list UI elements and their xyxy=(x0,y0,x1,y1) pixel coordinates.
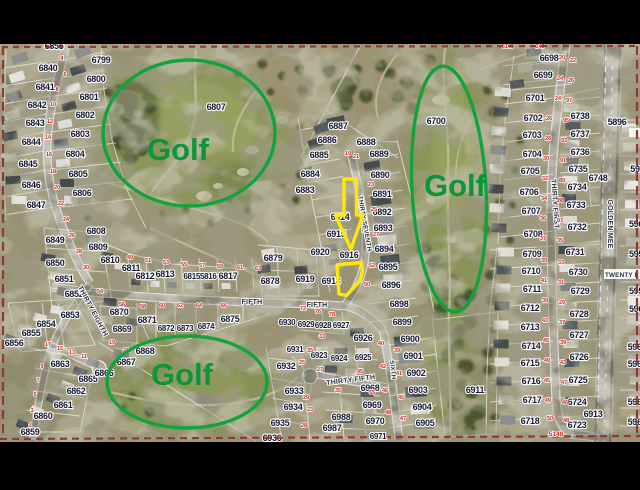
svg-text:21: 21 xyxy=(353,154,359,160)
svg-text:47: 47 xyxy=(400,416,406,422)
svg-text:FIFTH: FIFTH xyxy=(307,302,328,309)
svg-text:6807: 6807 xyxy=(207,102,226,112)
svg-text:Golf: Golf xyxy=(424,168,487,203)
svg-text:20: 20 xyxy=(559,55,565,61)
svg-text:6709: 6709 xyxy=(523,249,542,259)
svg-text:6916: 6916 xyxy=(340,250,359,260)
svg-text:6699: 6699 xyxy=(534,70,553,80)
svg-text:39: 39 xyxy=(542,298,548,304)
svg-text:6718: 6718 xyxy=(521,416,540,426)
svg-text:48: 48 xyxy=(385,410,391,416)
svg-text:45: 45 xyxy=(357,369,363,375)
svg-text:34: 34 xyxy=(541,196,548,202)
svg-text:47: 47 xyxy=(561,380,567,386)
svg-text:6856: 6856 xyxy=(5,338,24,348)
svg-text:9: 9 xyxy=(40,364,43,370)
svg-text:6735: 6735 xyxy=(569,164,588,174)
svg-text:6725: 6725 xyxy=(569,375,588,385)
svg-text:97: 97 xyxy=(566,98,572,104)
svg-text:30: 30 xyxy=(543,156,549,162)
svg-text:6841: 6841 xyxy=(36,82,55,92)
svg-text:66: 66 xyxy=(221,303,227,309)
svg-text:6727: 6727 xyxy=(570,330,589,340)
svg-text:35: 35 xyxy=(335,388,341,394)
svg-text:6701: 6701 xyxy=(526,93,545,103)
svg-text:27: 27 xyxy=(373,232,379,238)
svg-text:TWENTY E: TWENTY E xyxy=(605,272,639,279)
svg-text:6804: 6804 xyxy=(66,149,85,159)
svg-text:6863: 6863 xyxy=(51,359,70,369)
svg-text:6700: 6700 xyxy=(427,116,446,126)
svg-text:1: 1 xyxy=(28,423,31,429)
svg-text:6869: 6869 xyxy=(113,324,132,334)
svg-text:6988: 6988 xyxy=(332,412,351,422)
svg-text:6919: 6919 xyxy=(296,274,315,284)
svg-text:63: 63 xyxy=(255,266,261,272)
svg-text:76: 76 xyxy=(315,309,321,315)
svg-text:46: 46 xyxy=(382,388,388,394)
svg-text:14: 14 xyxy=(45,135,52,141)
svg-text:7: 7 xyxy=(36,378,39,384)
svg-text:6894: 6894 xyxy=(375,244,394,254)
svg-text:8: 8 xyxy=(55,87,58,93)
svg-text:55: 55 xyxy=(369,390,375,396)
svg-text:93: 93 xyxy=(561,138,567,144)
svg-text:6923: 6923 xyxy=(311,351,328,360)
svg-text:6840: 6840 xyxy=(39,63,58,73)
svg-text:596: 596 xyxy=(629,304,640,314)
svg-text:28: 28 xyxy=(301,423,307,429)
svg-text:GOLDEN MEE: GOLDEN MEE xyxy=(606,199,613,248)
svg-text:30: 30 xyxy=(83,265,89,271)
svg-text:6711: 6711 xyxy=(523,284,542,294)
svg-text:16: 16 xyxy=(46,152,52,158)
svg-text:6813: 6813 xyxy=(156,269,175,279)
svg-text:6889: 6889 xyxy=(370,149,389,159)
svg-text:6809: 6809 xyxy=(89,242,108,252)
svg-text:6712: 6712 xyxy=(521,303,540,313)
svg-text:49: 49 xyxy=(544,358,550,364)
svg-text:26: 26 xyxy=(546,116,552,122)
svg-text:5966: 5966 xyxy=(628,417,640,427)
svg-text:58: 58 xyxy=(140,304,146,310)
svg-text:6726: 6726 xyxy=(570,352,589,362)
svg-text:6896: 6896 xyxy=(382,280,401,290)
svg-text:6800: 6800 xyxy=(87,74,106,84)
svg-text:6879: 6879 xyxy=(264,253,283,263)
svg-text:6851: 6851 xyxy=(55,274,74,284)
svg-text:55: 55 xyxy=(181,262,187,268)
svg-text:6903: 6903 xyxy=(409,385,428,395)
svg-text:6849: 6849 xyxy=(46,235,65,245)
svg-text:15: 15 xyxy=(57,346,63,352)
svg-text:6702: 6702 xyxy=(524,113,543,123)
svg-text:26: 26 xyxy=(568,78,574,84)
svg-text:6713: 6713 xyxy=(521,322,540,332)
svg-text:6874: 6874 xyxy=(198,322,215,331)
svg-text:6971: 6971 xyxy=(370,432,387,441)
svg-text:39: 39 xyxy=(560,340,566,346)
svg-text:6925: 6925 xyxy=(355,353,372,362)
svg-text:20: 20 xyxy=(54,185,60,191)
svg-text:6698: 6698 xyxy=(540,53,559,63)
svg-text:6710: 6710 xyxy=(522,266,541,276)
svg-text:11: 11 xyxy=(81,354,87,360)
svg-text:6870: 6870 xyxy=(110,307,129,317)
svg-text:43: 43 xyxy=(560,360,566,366)
svg-text:6: 6 xyxy=(63,72,66,78)
svg-text:6900: 6900 xyxy=(401,334,420,344)
svg-text:6930: 6930 xyxy=(279,318,296,327)
svg-text:37: 37 xyxy=(540,236,546,242)
svg-text:45: 45 xyxy=(398,395,404,401)
svg-text:595: 595 xyxy=(629,286,640,296)
svg-text:41: 41 xyxy=(541,278,547,284)
svg-text:6868: 6868 xyxy=(136,346,155,356)
svg-text:91: 91 xyxy=(560,158,566,164)
svg-text:6845: 6845 xyxy=(19,159,38,169)
svg-text:23: 23 xyxy=(307,407,313,413)
svg-text:6891: 6891 xyxy=(373,189,392,199)
svg-text:6802: 6802 xyxy=(76,110,95,120)
svg-text:6810: 6810 xyxy=(101,255,120,265)
svg-text:54: 54 xyxy=(97,289,104,295)
svg-text:596: 596 xyxy=(629,219,640,229)
svg-text:39: 39 xyxy=(541,258,547,264)
svg-text:6738: 6738 xyxy=(571,111,590,121)
svg-text:28: 28 xyxy=(76,249,82,255)
svg-text:40: 40 xyxy=(378,341,384,347)
svg-text:6886: 6886 xyxy=(318,135,337,145)
svg-text:6737: 6737 xyxy=(571,129,590,139)
svg-text:52: 52 xyxy=(369,263,375,269)
svg-text:12: 12 xyxy=(47,119,53,125)
svg-text:36: 36 xyxy=(540,216,546,222)
svg-text:6733: 6733 xyxy=(567,200,586,210)
svg-text:29: 29 xyxy=(303,395,309,401)
svg-text:5148: 5148 xyxy=(549,431,564,438)
svg-text:59: 59 xyxy=(630,164,640,174)
svg-text:6843: 6843 xyxy=(26,118,45,128)
svg-text:6716: 6716 xyxy=(522,376,541,386)
svg-text:33: 33 xyxy=(319,334,325,340)
svg-text:6935: 6935 xyxy=(271,418,290,428)
svg-text:6970: 6970 xyxy=(366,416,385,426)
svg-text:89: 89 xyxy=(559,178,565,184)
svg-text:5896: 5896 xyxy=(608,117,627,127)
svg-text:FIFTH: FIFTH xyxy=(242,299,263,306)
svg-text:6885: 6885 xyxy=(310,150,329,160)
svg-text:6704: 6704 xyxy=(523,149,542,159)
svg-text:6707: 6707 xyxy=(522,206,541,216)
svg-text:88: 88 xyxy=(558,198,564,204)
svg-text:22: 22 xyxy=(570,58,576,64)
svg-text:39: 39 xyxy=(394,348,400,354)
svg-text:6888: 6888 xyxy=(357,137,376,147)
svg-text:10: 10 xyxy=(50,102,56,108)
svg-text:42: 42 xyxy=(380,364,386,370)
svg-text:6861: 6861 xyxy=(54,400,73,410)
svg-text:5: 5 xyxy=(33,392,36,398)
svg-text:6926: 6926 xyxy=(354,333,373,343)
svg-text:64: 64 xyxy=(196,303,203,309)
svg-text:60: 60 xyxy=(159,303,165,309)
svg-text:78: 78 xyxy=(329,312,335,318)
svg-text:6717: 6717 xyxy=(523,395,542,405)
svg-text:24: 24 xyxy=(63,217,70,223)
svg-text:6878: 6878 xyxy=(261,276,280,286)
svg-text:49: 49 xyxy=(545,398,551,404)
svg-text:6714: 6714 xyxy=(522,341,541,351)
svg-text:6911: 6911 xyxy=(466,385,485,395)
svg-text:6920: 6920 xyxy=(311,247,330,257)
svg-text:6846: 6846 xyxy=(22,180,41,190)
svg-text:32: 32 xyxy=(542,176,548,182)
svg-text:45: 45 xyxy=(544,378,550,384)
svg-text:45: 45 xyxy=(543,338,549,344)
svg-text:18: 18 xyxy=(50,169,56,175)
svg-text:22: 22 xyxy=(58,201,64,207)
svg-text:6724: 6724 xyxy=(568,397,587,407)
svg-text:49: 49 xyxy=(127,255,133,261)
svg-text:6715: 6715 xyxy=(521,358,540,368)
svg-text:6987: 6987 xyxy=(323,423,342,433)
svg-text:87: 87 xyxy=(557,218,563,224)
svg-text:37: 37 xyxy=(559,320,565,326)
svg-text:6890: 6890 xyxy=(371,170,390,180)
svg-text:6732: 6732 xyxy=(568,222,587,232)
svg-text:43: 43 xyxy=(542,318,548,324)
svg-text:595: 595 xyxy=(629,249,640,259)
svg-text:57: 57 xyxy=(199,263,205,269)
svg-text:6902: 6902 xyxy=(407,368,426,378)
svg-text:46: 46 xyxy=(562,400,568,406)
svg-text:6801: 6801 xyxy=(80,92,99,102)
svg-text:5965: 5965 xyxy=(628,397,640,407)
svg-text:51: 51 xyxy=(145,258,151,264)
svg-text:5962: 5962 xyxy=(628,342,640,352)
svg-text:6728: 6728 xyxy=(570,309,589,319)
svg-text:6931: 6931 xyxy=(287,345,304,354)
svg-text:24: 24 xyxy=(557,76,564,82)
svg-text:6899: 6899 xyxy=(393,317,412,327)
svg-text:50: 50 xyxy=(364,282,370,288)
svg-text:25: 25 xyxy=(371,207,377,213)
svg-text:53: 53 xyxy=(163,260,169,266)
svg-text:6929: 6929 xyxy=(298,320,315,329)
svg-text:6969: 6969 xyxy=(363,400,382,410)
svg-text:3: 3 xyxy=(30,408,33,414)
svg-text:25: 25 xyxy=(299,360,305,366)
svg-text:6842: 6842 xyxy=(28,100,47,110)
svg-text:72: 72 xyxy=(300,306,306,312)
svg-text:6934: 6934 xyxy=(284,402,303,412)
svg-text:Golf: Golf xyxy=(151,357,214,392)
svg-text:6703: 6703 xyxy=(523,130,542,140)
svg-text:31: 31 xyxy=(558,280,564,286)
svg-text:6862: 6862 xyxy=(67,386,86,396)
svg-text:6871: 6871 xyxy=(138,315,157,325)
svg-text:41: 41 xyxy=(396,371,402,377)
svg-text:6901: 6901 xyxy=(404,351,423,361)
svg-text:6799: 6799 xyxy=(92,55,111,65)
svg-text:6730: 6730 xyxy=(569,267,588,277)
svg-text:6734: 6734 xyxy=(568,182,587,192)
svg-text:6873: 6873 xyxy=(177,324,194,333)
svg-text:50: 50 xyxy=(547,416,553,422)
svg-text:19: 19 xyxy=(345,151,351,157)
svg-text:35: 35 xyxy=(557,238,563,244)
svg-text:6927: 6927 xyxy=(333,321,350,330)
svg-text:33: 33 xyxy=(558,260,564,266)
svg-text:6860: 6860 xyxy=(34,411,53,421)
svg-text:6883: 6883 xyxy=(296,185,315,195)
svg-text:6928: 6928 xyxy=(315,321,332,330)
svg-text:26: 26 xyxy=(69,233,75,239)
svg-text:6875: 6875 xyxy=(221,314,240,324)
svg-text:68155816: 68155816 xyxy=(183,272,217,281)
svg-text:62: 62 xyxy=(177,303,183,309)
svg-text:6729: 6729 xyxy=(571,286,590,296)
svg-text:6706: 6706 xyxy=(520,187,539,197)
svg-text:5963: 5963 xyxy=(628,359,640,369)
svg-text:17: 17 xyxy=(45,342,51,348)
svg-text:6844: 6844 xyxy=(22,137,41,147)
svg-text:6736: 6736 xyxy=(571,147,590,157)
svg-text:27: 27 xyxy=(317,367,323,373)
svg-text:6817: 6817 xyxy=(219,271,238,281)
svg-text:6887: 6887 xyxy=(329,121,348,131)
svg-text:28: 28 xyxy=(545,136,551,142)
svg-text:6803: 6803 xyxy=(71,129,90,139)
svg-text:95: 95 xyxy=(563,118,569,124)
svg-text:6872: 6872 xyxy=(158,324,175,333)
svg-text:6723: 6723 xyxy=(568,420,587,430)
svg-text:6855: 6855 xyxy=(22,328,41,338)
svg-text:56: 56 xyxy=(119,302,125,308)
svg-text:6731: 6731 xyxy=(566,247,585,257)
svg-text:13: 13 xyxy=(69,350,75,356)
svg-text:48: 48 xyxy=(563,418,569,424)
svg-text:29: 29 xyxy=(559,300,565,306)
svg-text:19: 19 xyxy=(109,340,115,346)
svg-text:35: 35 xyxy=(307,348,313,354)
svg-text:6850: 6850 xyxy=(46,258,65,268)
svg-text:6805: 6805 xyxy=(69,169,88,179)
svg-text:6853: 6853 xyxy=(61,310,80,320)
svg-text:6913: 6913 xyxy=(584,409,603,419)
svg-text:6705: 6705 xyxy=(521,166,540,176)
svg-text:Golf: Golf xyxy=(147,132,210,167)
svg-text:6806: 6806 xyxy=(73,188,92,198)
svg-text:61: 61 xyxy=(237,265,243,271)
svg-text:6895: 6895 xyxy=(379,262,398,272)
svg-text:24: 24 xyxy=(555,96,562,102)
svg-text:6904: 6904 xyxy=(413,402,432,412)
svg-text:6808: 6808 xyxy=(87,226,106,236)
svg-text:6905: 6905 xyxy=(416,418,435,428)
svg-text:6812: 6812 xyxy=(136,271,155,281)
svg-text:6898: 6898 xyxy=(390,299,409,309)
svg-text:6748: 6748 xyxy=(589,173,608,183)
svg-text:6884: 6884 xyxy=(301,169,320,179)
svg-text:23: 23 xyxy=(368,182,374,188)
svg-text:6933: 6933 xyxy=(285,386,304,396)
svg-text:6924: 6924 xyxy=(331,354,348,363)
svg-text:59: 59 xyxy=(217,264,223,270)
svg-text:6932: 6932 xyxy=(277,361,296,371)
svg-text:6847: 6847 xyxy=(27,200,46,210)
